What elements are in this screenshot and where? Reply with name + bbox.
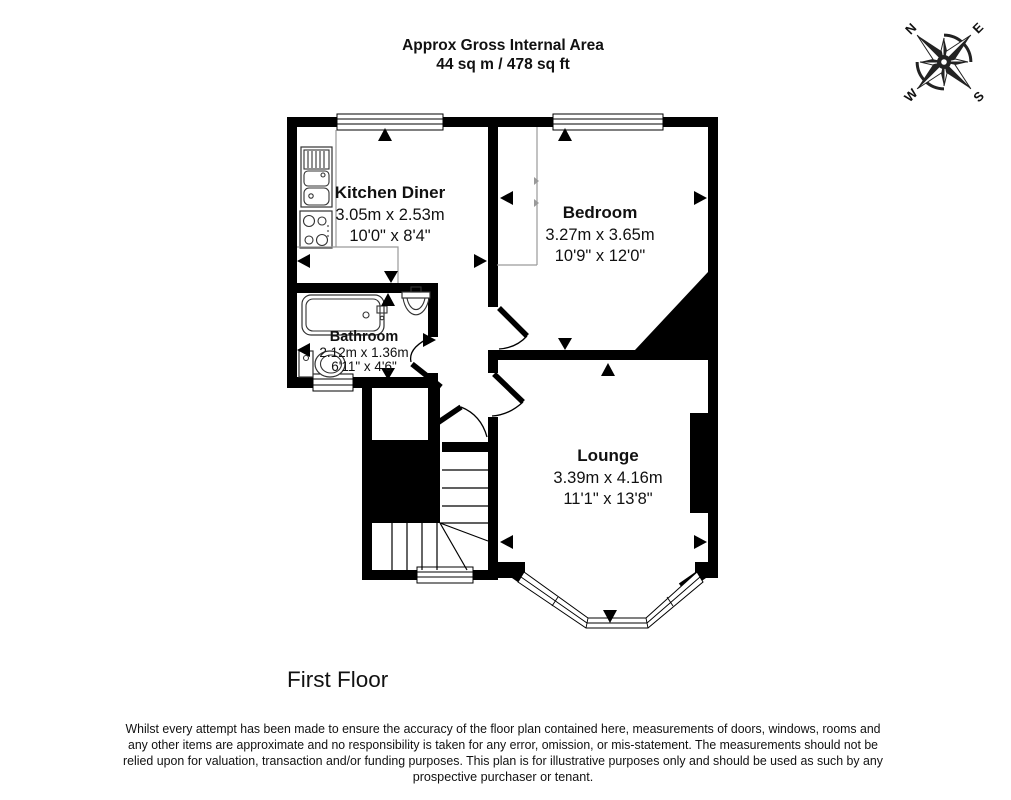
disclaimer-line-3: relied upon for valuation, transaction a… [123, 754, 884, 768]
floorplan-canvas: Approx Gross Internal Area 44 sq m / 478… [0, 0, 1011, 800]
compass-s-label: S [970, 88, 987, 105]
compass-e-label: E [970, 19, 987, 36]
wall-lounge-left [488, 417, 498, 578]
lounge-door [492, 374, 523, 416]
stair-void-block [372, 440, 440, 523]
sink-unit-icon [301, 147, 332, 207]
bedroom-arrow-right-icon [694, 191, 707, 205]
chimney-breast-bedroom [635, 272, 708, 350]
disclaimer-line-4: prospective purchaser or tenant. [413, 770, 594, 784]
bathroom-imperial: 6'11" x 4'6" [331, 359, 397, 374]
bedroom-arrow-down-icon [558, 338, 572, 350]
disclaimer: Whilst every attempt has been made to en… [123, 722, 884, 784]
kitchen-name: Kitchen Diner [335, 183, 446, 202]
kitchen-arrow-left-icon [297, 254, 310, 268]
compass-rose-icon: N E S W [868, 0, 1011, 140]
lounge-arrow-up-icon [601, 363, 615, 376]
lounge-name: Lounge [577, 446, 638, 465]
kitchen-window [337, 114, 443, 130]
wall-right [708, 117, 718, 577]
bathroom-name: Bathroom [330, 329, 398, 345]
floor-label: First Floor [287, 667, 389, 692]
lounge-imperial: 11'1" x 13'8" [563, 490, 652, 508]
bedroom-arrow-left-icon [500, 191, 513, 205]
wall-bedroom-bottom [488, 350, 718, 360]
stairwell-window [417, 567, 473, 583]
kitchen-metric: 3.05m x 2.53m [335, 206, 444, 224]
kitchen-arrow-right-icon [474, 254, 487, 268]
lounge-arrow-right-icon [694, 535, 707, 549]
wall-kitchen-bedroom [488, 117, 498, 307]
wardrobe-icon [497, 127, 539, 265]
disclaimer-line-2: any other items are approximate and no r… [128, 738, 878, 752]
disclaimer-line-1: Whilst every attempt has been made to en… [126, 722, 881, 736]
hob-icon [300, 211, 332, 248]
wall-stairs-top [442, 442, 488, 452]
wall-left [287, 117, 297, 388]
chimney-breast-lounge [690, 413, 708, 513]
bedroom-name: Bedroom [563, 203, 638, 222]
bedroom-metric: 3.27m x 3.65m [545, 226, 654, 244]
floorplan-page: Approx Gross Internal Area 44 sq m / 478… [0, 0, 1011, 800]
measure-arrows [297, 128, 707, 623]
bedroom-door [499, 308, 527, 349]
lounge-metric: 3.39m x 4.16m [553, 469, 662, 487]
plan-title: Approx Gross Internal Area [402, 37, 604, 54]
wall-stairwell-left [362, 377, 372, 580]
kitchen-imperial: 10'0" x 8'4" [349, 227, 430, 245]
bedroom-window [553, 114, 663, 130]
lounge-arrow-left-icon [500, 535, 513, 549]
kitchen-arrow-down-icon [384, 271, 398, 283]
compass-n-label: N [902, 20, 919, 37]
bedroom-imperial: 10'9" x 12'0" [555, 247, 646, 265]
plan-area: 44 sq m / 478 sq ft [436, 56, 570, 73]
bathroom-metric: 2.12m x 1.36m [319, 345, 408, 360]
counter-edge-horizontal [297, 247, 398, 283]
